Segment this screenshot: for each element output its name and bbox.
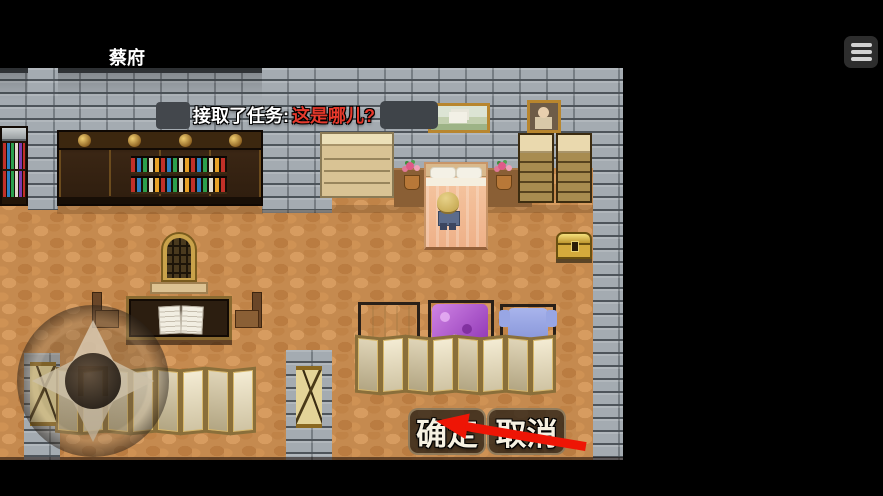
bottle-shelf <box>131 156 227 174</box>
redaction-box <box>156 102 190 129</box>
folding-screen <box>356 336 556 394</box>
ornate-cabinet-row <box>57 130 263 206</box>
cabinet-medallions <box>59 132 261 150</box>
quest-banner-name: 这是哪儿? <box>292 102 375 128</box>
book-row <box>3 143 25 169</box>
bookshelf <box>0 126 28 206</box>
stone-wall-right <box>593 68 623 460</box>
app-screen: 蔡府 <box>0 0 883 496</box>
treasure-chest <box>556 232 592 263</box>
confirm-button[interactable]: 确定 <box>408 408 486 455</box>
quest-banner-prefix: 接取了任务: <box>193 102 289 128</box>
bookshelf-top <box>2 128 26 141</box>
menu-button[interactable] <box>844 36 878 68</box>
floor-shadow <box>57 206 263 214</box>
cancel-button[interactable]: 取消 <box>487 408 566 455</box>
drawer-chests <box>518 133 592 203</box>
bottle-shelf <box>131 176 227 194</box>
flower-vase <box>492 160 514 190</box>
flower-vase <box>400 160 422 190</box>
player-character-sprite <box>436 192 460 230</box>
stone-pillar-left-top <box>28 68 58 210</box>
game-viewport[interactable]: 接取了任务: 这是哪儿? 确定 取消 <box>0 68 623 460</box>
hamburger-icon <box>851 50 872 54</box>
portrait-painting <box>527 100 561 133</box>
hanging-scroll-art <box>296 366 322 428</box>
quest-banner: 接取了任务: 这是哪儿? <box>156 100 438 130</box>
virtual-dpad[interactable] <box>17 305 169 457</box>
dpad-center-hub[interactable] <box>65 353 121 409</box>
book-row <box>3 171 25 197</box>
throne-base <box>150 282 208 294</box>
page-title: 蔡府 <box>109 44 145 70</box>
dresser <box>320 132 394 198</box>
throne-chair <box>157 232 201 294</box>
throne-back <box>167 238 191 278</box>
hamburger-icon <box>851 43 872 47</box>
open-book <box>159 306 203 334</box>
cabinet-base <box>59 197 261 204</box>
redaction-box <box>380 101 438 129</box>
side-chair <box>236 292 262 332</box>
hamburger-icon <box>851 57 872 61</box>
